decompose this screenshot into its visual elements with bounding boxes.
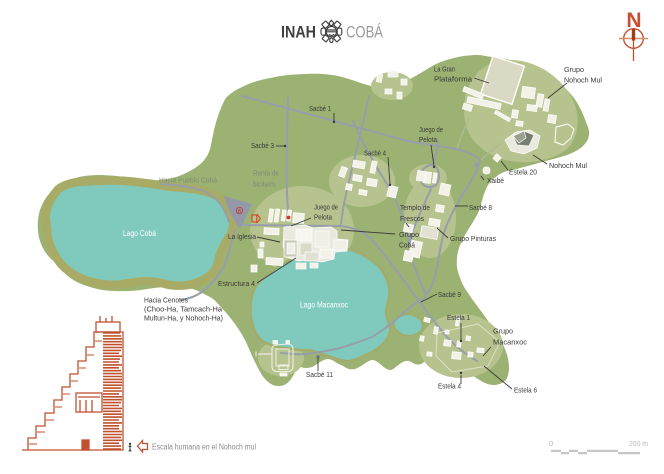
svg-text:Templo de: Templo de	[400, 203, 430, 212]
svg-text:Escala humana en el Nohoch mul: Escala humana en el Nohoch mul	[152, 443, 256, 452]
svg-text:200 m: 200 m	[629, 439, 648, 448]
svg-text:INAH: INAH	[281, 24, 316, 42]
svg-text:Hacia Pueblo Cobá: Hacia Pueblo Cobá	[159, 176, 218, 185]
svg-text:Estela 20: Estela 20	[509, 168, 537, 177]
svg-text:R: R	[238, 208, 242, 214]
svg-text:Sacbé 1: Sacbé 1	[309, 104, 331, 113]
svg-text:Grupo: Grupo	[399, 230, 419, 239]
svg-text:La Gran: La Gran	[434, 65, 455, 74]
svg-text:Pelota: Pelota	[419, 135, 438, 144]
svg-text:bicitaxis: bicitaxis	[253, 180, 276, 189]
svg-text:Nohoch Mul: Nohoch Mul	[549, 161, 587, 170]
svg-text:Renta de: Renta de	[253, 169, 279, 178]
svg-text:Frescos: Frescos	[400, 214, 424, 223]
svg-text:Estela 4: Estela 4	[438, 382, 461, 391]
svg-text:Sacbé 3: Sacbé 3	[251, 141, 274, 150]
svg-text:Juego de: Juego de	[314, 203, 338, 212]
svg-text:Plataforma: Plataforma	[434, 75, 473, 84]
svg-text:Sacbé 8: Sacbé 8	[469, 203, 492, 212]
svg-text:Estela 1: Estela 1	[447, 313, 470, 322]
svg-text:Cobá: Cobá	[399, 241, 416, 250]
svg-text:Xaibé: Xaibé	[487, 176, 504, 185]
svg-text:Grupo: Grupo	[564, 65, 584, 74]
svg-text:Pelota: Pelota	[314, 213, 333, 222]
svg-text:Grupo Pinturas: Grupo Pinturas	[450, 234, 496, 243]
svg-text:0: 0	[549, 439, 553, 448]
svg-text:La Iglesia: La Iglesia	[228, 232, 257, 241]
svg-text:COBÁ: COBÁ	[346, 23, 383, 42]
svg-text:Hacia Cenotes: Hacia Cenotes	[144, 296, 188, 305]
svg-text:Estela 6: Estela 6	[514, 386, 537, 395]
svg-text:Nohoch Mul: Nohoch Mul	[564, 76, 602, 85]
svg-text:(Choo-Ha, Tamcach-Ha: (Choo-Ha, Tamcach-Ha	[144, 305, 223, 314]
svg-text:Lago Cobá: Lago Cobá	[123, 229, 156, 238]
svg-text:Estructura 4: Estructura 4	[218, 279, 255, 288]
svg-text:Grupo: Grupo	[493, 327, 513, 336]
svg-text:Lago Macanxoc: Lago Macanxoc	[300, 301, 348, 310]
svg-text:Sacbé 11: Sacbé 11	[306, 370, 333, 379]
svg-text:Sacbé 9: Sacbé 9	[438, 290, 461, 299]
svg-text:Juego de: Juego de	[419, 125, 443, 134]
svg-text:Sacbé 4: Sacbé 4	[364, 149, 386, 158]
svg-text:Macanxoc: Macanxoc	[493, 338, 527, 347]
svg-text:Multun-Ha, y Nohoch-Ha): Multun-Ha, y Nohoch-Ha)	[144, 314, 223, 323]
